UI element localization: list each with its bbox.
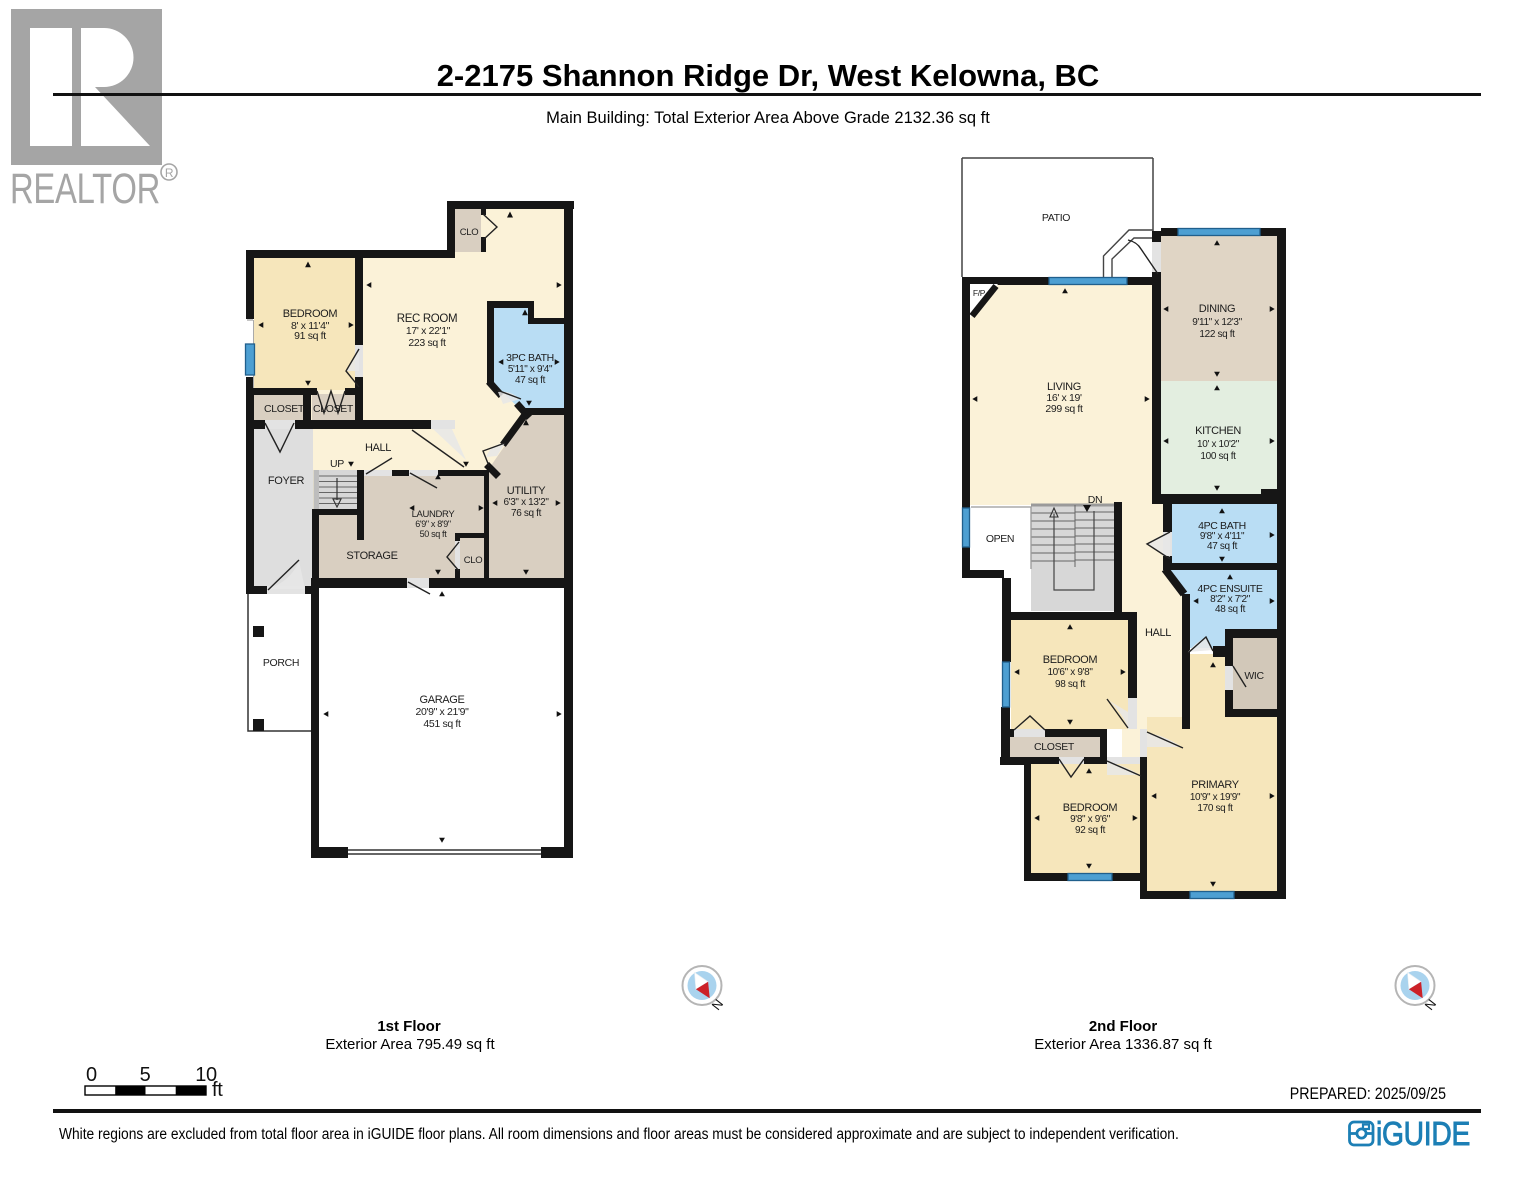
svg-text:REALTOR: REALTOR <box>10 165 160 213</box>
svg-text:9'11" x 12'3": 9'11" x 12'3" <box>1192 317 1242 328</box>
svg-text:CLO: CLO <box>460 227 478 238</box>
svg-text:CLOSET: CLOSET <box>264 403 305 415</box>
svg-text:223 sq ft: 223 sq ft <box>408 337 446 349</box>
svg-text:STORAGE: STORAGE <box>346 550 397 562</box>
svg-text:20'9" x 21'9": 20'9" x 21'9" <box>415 706 469 718</box>
svg-text:451 sq ft: 451 sq ft <box>423 718 461 730</box>
svg-text:BEDROOM: BEDROOM <box>1043 654 1098 666</box>
svg-text:N: N <box>1421 997 1438 1013</box>
svg-text:0: 0 <box>86 1064 97 1086</box>
svg-text:OPEN: OPEN <box>986 533 1014 545</box>
svg-text:122 sq ft: 122 sq ft <box>1199 329 1235 340</box>
svg-text:17' x 22'1": 17' x 22'1" <box>406 325 451 337</box>
svg-text:47 sq ft: 47 sq ft <box>1207 541 1238 552</box>
svg-text:299 sq ft: 299 sq ft <box>1045 403 1083 415</box>
svg-text:REC ROOM: REC ROOM <box>397 313 457 325</box>
svg-text:3PC BATH: 3PC BATH <box>506 352 554 364</box>
svg-text:92 sq ft: 92 sq ft <box>1075 825 1106 836</box>
svg-text:HALL: HALL <box>1145 627 1171 639</box>
svg-text:BEDROOM: BEDROOM <box>1063 802 1118 814</box>
svg-text:ft: ft <box>212 1079 223 1101</box>
svg-text:CLO: CLO <box>464 555 482 566</box>
svg-text:PRIMARY: PRIMARY <box>1191 779 1239 791</box>
svg-text:5: 5 <box>140 1064 151 1086</box>
svg-text:170 sq ft: 170 sq ft <box>1197 803 1233 814</box>
svg-text:10' x 10'2": 10' x 10'2" <box>1197 439 1240 450</box>
svg-text:10'9" x 19'9": 10'9" x 19'9" <box>1190 792 1241 803</box>
svg-text:BEDROOM: BEDROOM <box>283 308 338 320</box>
svg-text:F/P: F/P <box>973 288 986 298</box>
svg-text:R: R <box>165 166 174 180</box>
svg-text:91 sq ft: 91 sq ft <box>294 330 326 342</box>
svg-text:DINING: DINING <box>1199 303 1235 315</box>
svg-text:10'6" x 9'8": 10'6" x 9'8" <box>1047 667 1093 678</box>
svg-text:WIC: WIC <box>1244 670 1264 682</box>
svg-text:UTILITY: UTILITY <box>507 485 547 497</box>
svg-text:6'9" x 8'9": 6'9" x 8'9" <box>415 519 451 529</box>
svg-text:PORCH: PORCH <box>263 657 299 669</box>
svg-text:76 sq ft: 76 sq ft <box>511 508 542 519</box>
svg-text:5'11" x 9'4": 5'11" x 9'4" <box>508 364 553 375</box>
svg-text:N: N <box>708 997 725 1013</box>
svg-text:CLOSET: CLOSET <box>1034 741 1075 753</box>
svg-text:100 sq ft: 100 sq ft <box>1200 451 1236 462</box>
svg-text:UP: UP <box>330 458 344 470</box>
svg-text:HALL: HALL <box>365 442 391 454</box>
svg-text:6'3" x 13'2": 6'3" x 13'2" <box>503 497 549 508</box>
svg-text:50 sq ft: 50 sq ft <box>420 529 448 539</box>
svg-text:47 sq ft: 47 sq ft <box>515 375 546 386</box>
svg-text:KITCHEN: KITCHEN <box>1195 425 1241 437</box>
svg-text:DN: DN <box>1088 494 1102 506</box>
svg-text:iGUIDE: iGUIDE <box>1376 1115 1470 1152</box>
svg-text:48 sq ft: 48 sq ft <box>1215 604 1246 615</box>
svg-text:PATIO: PATIO <box>1042 212 1070 224</box>
svg-text:9'8" x 9'6": 9'8" x 9'6" <box>1070 814 1111 825</box>
svg-text:98 sq ft: 98 sq ft <box>1055 679 1086 690</box>
svg-text:FOYER: FOYER <box>268 475 305 487</box>
svg-text:GARAGE: GARAGE <box>420 694 465 706</box>
svg-text:CLOSET: CLOSET <box>313 403 354 415</box>
